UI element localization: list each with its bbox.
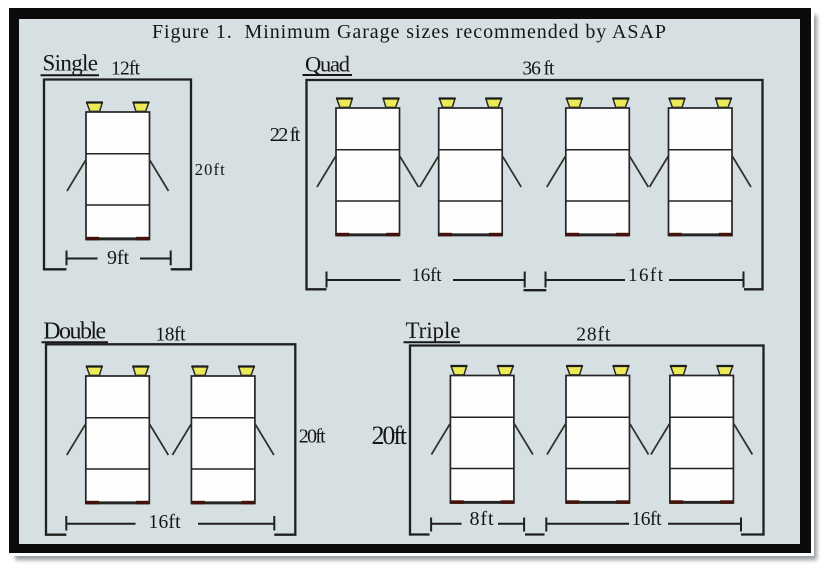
svg-text:16ft: 16ft bbox=[632, 509, 663, 530]
svg-text:16ft: 16ft bbox=[628, 265, 664, 286]
svg-text:Figure 1. Minimum Garage size: Figure 1. Minimum Garage sizes recommend… bbox=[152, 21, 666, 43]
svg-text:22 ft: 22 ft bbox=[270, 124, 301, 146]
svg-text:18ft: 18ft bbox=[156, 324, 187, 345]
svg-text:36 ft: 36 ft bbox=[522, 58, 555, 79]
svg-text:20ft: 20ft bbox=[195, 160, 225, 179]
svg-text:28ft: 28ft bbox=[576, 324, 611, 345]
svg-text:Triple: Triple bbox=[406, 318, 461, 343]
svg-text:20ft: 20ft bbox=[299, 425, 326, 447]
svg-text:8ft: 8ft bbox=[470, 508, 494, 530]
svg-text:Single: Single bbox=[43, 51, 99, 76]
svg-text:16ft: 16ft bbox=[149, 512, 182, 533]
svg-text:9ft: 9ft bbox=[107, 247, 129, 269]
svg-text:20ft: 20ft bbox=[372, 421, 408, 450]
svg-text:Double: Double bbox=[43, 318, 106, 344]
svg-text:Quad: Quad bbox=[305, 52, 350, 77]
svg-text:12ft: 12ft bbox=[111, 59, 141, 80]
svg-text:16ft: 16ft bbox=[412, 265, 443, 286]
